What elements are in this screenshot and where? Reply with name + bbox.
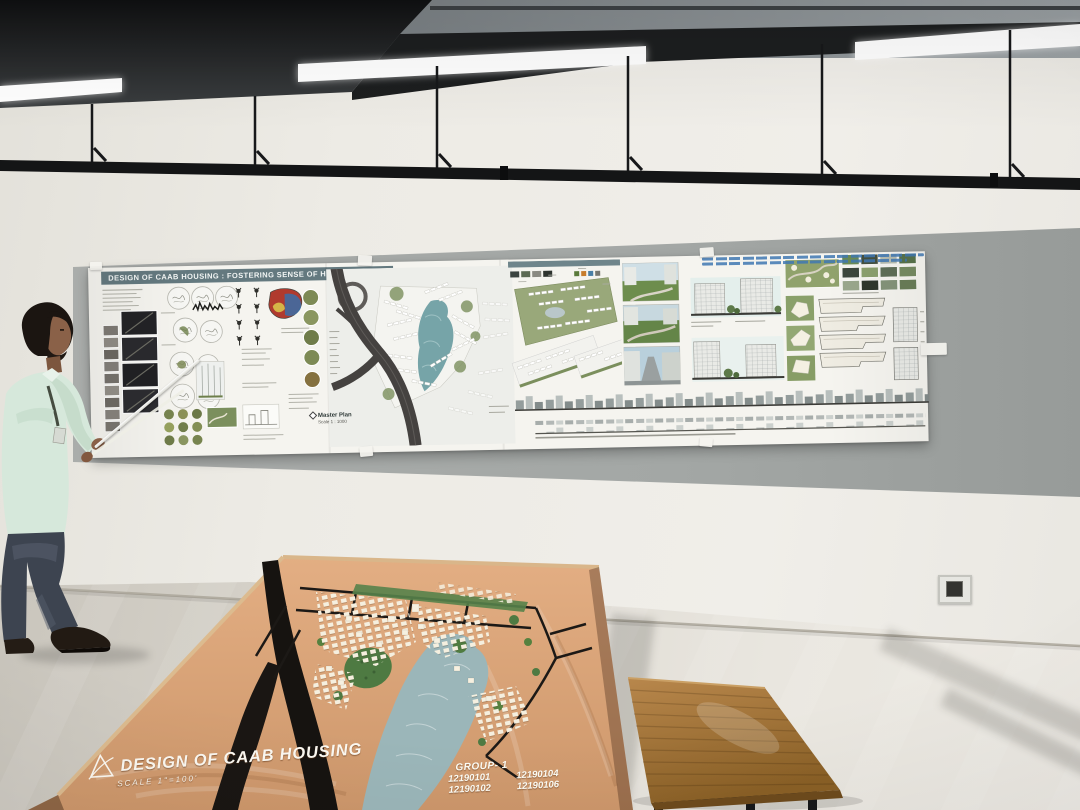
building-elevation bbox=[692, 336, 785, 382]
lake bbox=[417, 300, 455, 392]
unit-axon-squares bbox=[786, 295, 816, 381]
elevations-and-plans bbox=[682, 251, 928, 388]
model-logo-icon bbox=[85, 751, 117, 781]
iso-strip bbox=[512, 335, 601, 386]
wooden-bench bbox=[618, 668, 882, 810]
tape-strip bbox=[359, 446, 373, 457]
tower-elevations bbox=[893, 307, 918, 379]
axon-site bbox=[514, 277, 617, 345]
text-ticks bbox=[691, 291, 925, 347]
bench-top bbox=[628, 678, 843, 810]
poster-seam bbox=[325, 263, 330, 453]
ceiling-structure bbox=[0, 0, 1080, 210]
green-circle-column bbox=[302, 289, 320, 387]
map-pin-diagrams bbox=[236, 288, 260, 346]
tape-strip bbox=[699, 437, 713, 447]
credits-line bbox=[702, 259, 907, 266]
material-circle-grid bbox=[164, 409, 203, 446]
leader-ticks bbox=[518, 268, 610, 287]
tape-strip bbox=[921, 343, 947, 356]
building-elevation bbox=[690, 276, 781, 318]
tape-strip bbox=[90, 262, 102, 270]
master-plan-scale: Scale 1 : 1000 bbox=[318, 418, 380, 424]
render-photos bbox=[622, 262, 683, 389]
iso-strip bbox=[574, 337, 623, 377]
landscape-thumb bbox=[207, 407, 237, 428]
studio-room-photo: DESIGN OF CAAB HOUSING : FOSTERING SENSE… bbox=[0, 0, 1080, 810]
student-id: 12190106 bbox=[517, 779, 560, 792]
section-sketch bbox=[243, 404, 279, 429]
site-plan-green bbox=[785, 259, 840, 288]
floor-plans bbox=[819, 298, 886, 367]
credits-line bbox=[702, 253, 924, 260]
ceiling-pipe bbox=[0, 160, 1080, 190]
master-plan-text: Master Plan bbox=[318, 412, 352, 419]
tape-strip bbox=[358, 255, 372, 266]
skyline-graph bbox=[193, 302, 223, 310]
master-plan-drawing bbox=[326, 265, 516, 447]
student-id: 12190102 bbox=[448, 783, 491, 796]
courtyard-render bbox=[623, 304, 680, 343]
building-rows bbox=[384, 282, 478, 388]
highway-interchange bbox=[330, 265, 416, 447]
master-plan-label: Master Plan Scale 1 : 1000 bbox=[310, 411, 380, 424]
context-buildings bbox=[446, 302, 511, 416]
outlet-socket bbox=[946, 581, 963, 597]
leader-text-ticks bbox=[329, 328, 509, 417]
board-title: DESIGN OF CAAB HOUSING : FOSTERING SENSE… bbox=[101, 266, 393, 285]
landuse-map bbox=[268, 288, 302, 318]
street-elevations bbox=[515, 385, 930, 441]
poster-seam bbox=[499, 260, 504, 450]
street-render bbox=[624, 346, 681, 385]
courtyard-render bbox=[622, 262, 679, 301]
tower-sketch bbox=[196, 361, 225, 400]
axon-buildings bbox=[528, 285, 611, 330]
presentation-board: DESIGN OF CAAB HOUSING : FOSTERING SENSE… bbox=[88, 251, 929, 458]
id-badge bbox=[53, 427, 66, 443]
legend-thumbnails bbox=[510, 270, 600, 278]
site-axonometric bbox=[508, 259, 623, 391]
power-outlet bbox=[938, 575, 972, 604]
tape-strip bbox=[699, 247, 714, 257]
group-info: GROUP- 1 12190101 12190104 12190102 1219… bbox=[447, 757, 559, 796]
greens bbox=[380, 285, 481, 400]
north-arrow-icon bbox=[309, 411, 317, 419]
diagram-thumbnails bbox=[842, 253, 917, 290]
